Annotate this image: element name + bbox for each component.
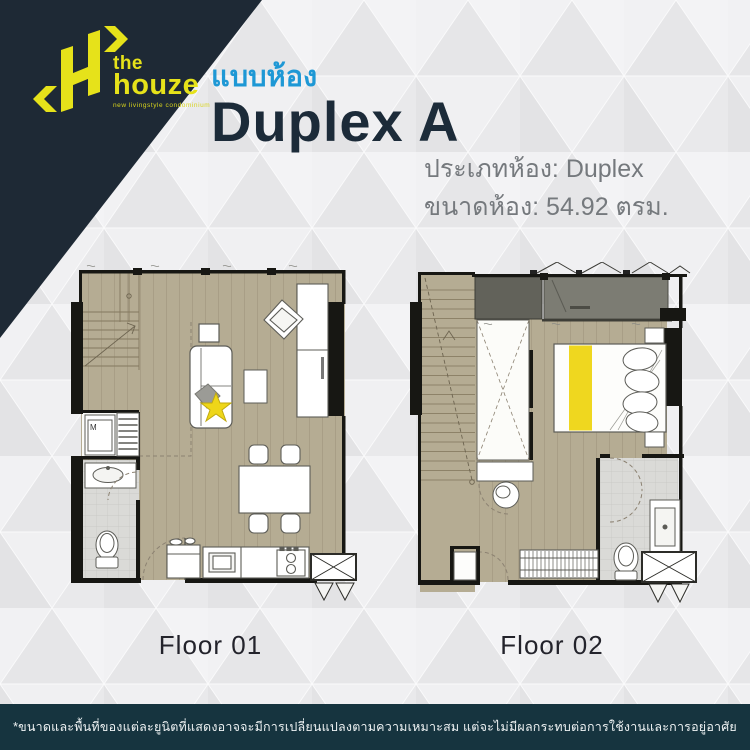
room-size-value: ขนาดห้อง: 54.92 ตรม. — [424, 188, 669, 226]
brand-name: the houze new livingstyle condominium — [113, 54, 210, 110]
dimension-marks — [87, 265, 297, 266]
floorplan-floor-02 — [402, 262, 702, 607]
nightstand — [645, 432, 664, 447]
page-subtitle: แบบห้อง — [211, 62, 460, 92]
coffee-table — [244, 370, 267, 403]
page: the houze new livingstyle condominium แบ… — [0, 0, 750, 750]
floor-01-label: Floor 01 — [63, 630, 358, 661]
room-type-value: ประเภทห้อง: Duplex — [424, 150, 669, 188]
stool — [493, 482, 519, 508]
stove — [277, 548, 305, 576]
ac-unit — [642, 552, 696, 602]
kitchen-counter — [203, 547, 309, 578]
footer-disclaimer: *ขนาดและพื้นที่ของแต่ละยูนิตที่แสดงอาจจะ… — [13, 717, 737, 737]
floor-areas — [420, 274, 678, 592]
cabinet — [297, 284, 328, 417]
bathroom-sink — [650, 500, 680, 554]
toilet — [614, 543, 638, 580]
shelf — [477, 462, 533, 481]
room-details: ประเภทห้อง: Duplex ขนาดห้อง: 54.92 ตรม. — [424, 150, 669, 226]
bathroom-sink — [85, 463, 136, 488]
header: แบบห้อง Duplex A — [211, 62, 460, 150]
washing-machine: M — [85, 415, 115, 455]
floorplan-floor-01: M — [63, 262, 358, 607]
nightstand — [645, 328, 664, 343]
bed-runner — [569, 346, 592, 431]
page-title: Duplex A — [211, 94, 460, 150]
washer-label: M — [90, 423, 97, 432]
shelf-rack — [117, 413, 139, 456]
closet-dark — [475, 277, 542, 319]
brand-tagline: new livingstyle condominium — [113, 103, 210, 110]
wardrobe — [477, 320, 529, 460]
shaft — [454, 552, 476, 580]
footer-bar: *ขนาดและพื้นที่ของแต่ละยูนิตที่แสดงอาจจะ… — [0, 704, 750, 750]
bed — [554, 328, 666, 447]
brand-name-line2: houze — [113, 71, 210, 100]
houze-logo: the houze new livingstyle condominium — [25, 18, 235, 143]
vent-grill — [520, 550, 598, 578]
floor-02-label: Floor 02 — [402, 630, 702, 661]
toilet — [96, 531, 118, 568]
ac-unit — [311, 554, 356, 600]
balcony — [544, 277, 668, 319]
